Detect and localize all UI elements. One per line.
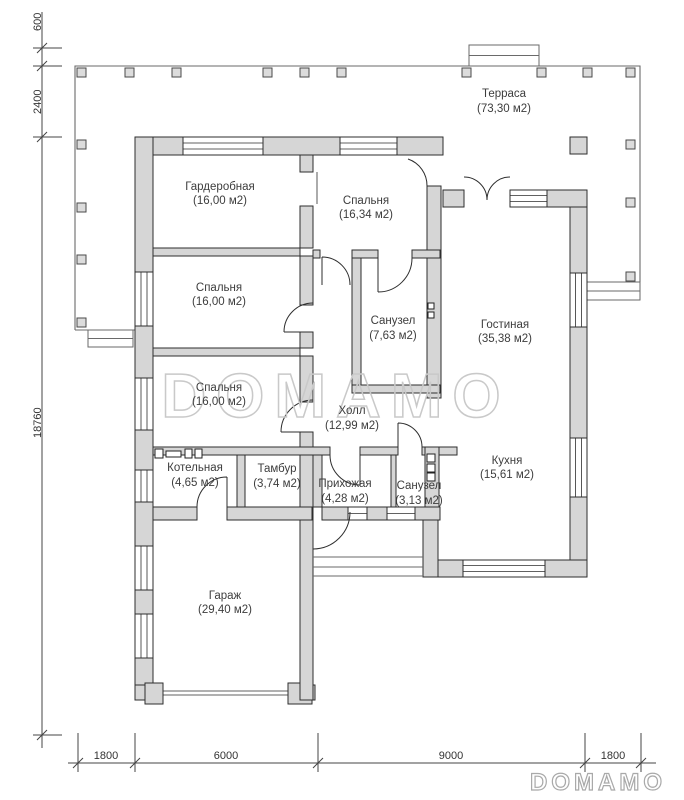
room-area: (3,13 м2) — [395, 495, 443, 507]
room-label-bedroom-1634: Спальня (16,34 м2) — [339, 195, 393, 221]
boiler-equipment — [195, 449, 202, 458]
room-area: (35,38 м2) — [478, 333, 532, 345]
terrace-top-steps — [469, 45, 539, 66]
room-label-bath-763: Санузел (7,63 м2) — [369, 315, 417, 342]
bath1-door — [378, 258, 412, 292]
boiler-equipment — [185, 449, 192, 458]
room-name: Холл — [338, 405, 365, 417]
room-area: (16,00 м2) — [192, 396, 246, 408]
room-name: Терраса — [482, 88, 527, 100]
terrace-left-step — [88, 330, 133, 347]
room-name: Котельная — [167, 462, 223, 474]
garage-door — [163, 691, 288, 695]
room-label-entry: Прихожая (4,28 м2) — [318, 478, 371, 505]
room-name: Прихожая — [318, 478, 371, 490]
room-label-boiler: Котельная (4,65 м2) — [167, 462, 223, 489]
room-area: (4,65 м2) — [171, 477, 219, 489]
room-label-terrace: Терраса (73,30 м2) — [477, 88, 531, 115]
room-name: Тамбур — [257, 463, 296, 475]
room-area: (16,00 м2) — [192, 296, 246, 308]
dim-left-18760: 18760 — [32, 407, 44, 438]
porch-steps — [313, 557, 423, 576]
room-name: Гардеробная — [185, 181, 255, 193]
floor-plan: 600 2400 18760 1800 6000 9000 1800 DOMAM… — [0, 0, 684, 800]
room-label-garage: Гараж (29,40 м2) — [198, 590, 252, 616]
watermark-corner: DOMAMO — [530, 769, 666, 796]
room-name: Гостиная — [481, 319, 529, 331]
room-name: Санузел — [371, 315, 416, 327]
room-area: (15,61 м2) — [480, 469, 534, 481]
dim-left-600: 600 — [32, 13, 44, 31]
dim-bottom-9000: 9000 — [439, 750, 463, 762]
room-label-kitchen: Кухня (15,61 м2) — [480, 455, 534, 481]
room-area: (7,63 м2) — [369, 330, 417, 342]
room-area: (4,28 м2) — [321, 493, 369, 505]
entrance-door-panel — [367, 507, 387, 520]
room-label-living: Гостиная (35,38 м2) — [478, 319, 532, 345]
room-name: Спальня — [343, 195, 389, 207]
dim-bottom-6000: 6000 — [214, 750, 238, 762]
terrace-right-steps — [587, 282, 640, 300]
dim-bottom-1800b: 1800 — [601, 750, 625, 762]
bedroom2-terrace-door-arc — [408, 159, 427, 186]
room-area: (16,00 м2) — [193, 195, 247, 207]
room-name: Спальня — [196, 382, 242, 394]
dim-left-2400: 2400 — [32, 90, 44, 114]
room-name: Санузел — [397, 480, 442, 492]
room-area: (12,99 м2) — [325, 420, 379, 432]
room-label-bedroom-mid: Спальня (16,00 м2) — [192, 282, 246, 308]
dim-bottom-1800a: 1800 — [94, 750, 118, 762]
room-name: Кухня — [492, 455, 523, 467]
room-name: Гараж — [209, 590, 242, 602]
room-area: (16,34 м2) — [339, 209, 393, 221]
living-terrace-door-right-arc — [487, 177, 510, 200]
room-area: (73,30 м2) — [477, 103, 531, 115]
room-name: Спальня — [196, 282, 242, 294]
room-area: (3,74 м2) — [253, 478, 301, 490]
room-label-vestibule: Тамбур (3,74 м2) — [253, 463, 301, 490]
bedroom1-door — [284, 303, 313, 332]
terrace-column — [570, 137, 587, 154]
living-terrace-door-left-arc — [464, 177, 487, 200]
boiler-equipment — [166, 451, 181, 457]
dimension-chain-left: 600 2400 18760 — [32, 12, 62, 748]
dimension-chain-bottom: 1800 6000 9000 1800 — [68, 733, 656, 772]
room-area: (29,40 м2) — [198, 604, 252, 616]
room-label-wardrobe: Гардеробная (16,00 м2) — [185, 181, 255, 207]
bedroom2-door — [322, 257, 350, 285]
floor-plan-page: 600 2400 18760 1800 6000 9000 1800 DOMAM… — [0, 0, 684, 800]
boiler-equipment — [155, 449, 163, 458]
